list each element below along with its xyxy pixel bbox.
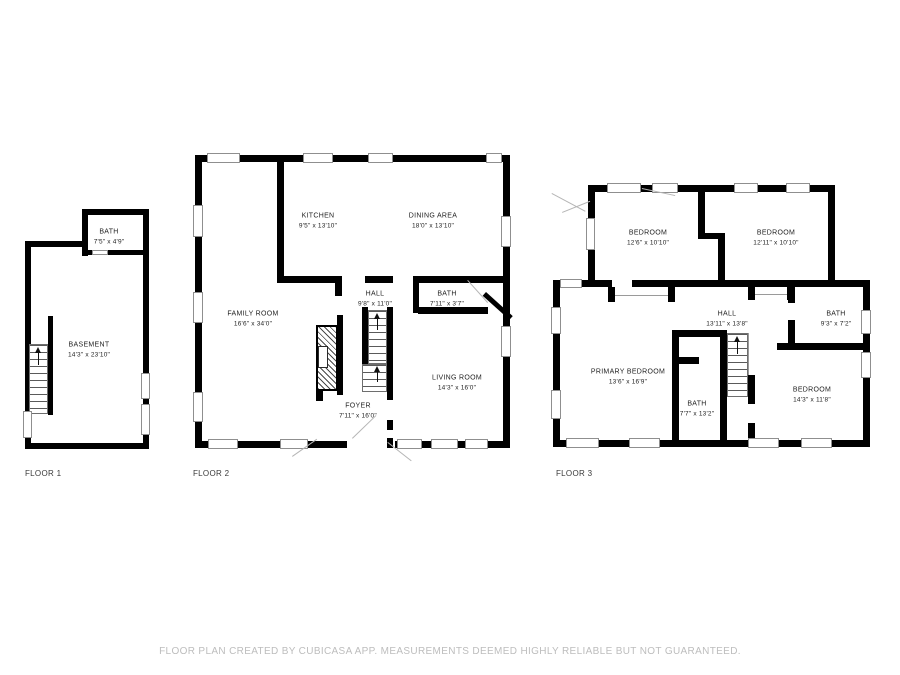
room-label: PRIMARY BEDROOM 13'6" x 16'9" xyxy=(591,368,665,387)
closet-front xyxy=(755,294,787,295)
wall xyxy=(672,330,720,337)
stair-arrow-stem xyxy=(737,342,738,354)
fireplace-hearth xyxy=(318,346,328,368)
window xyxy=(23,411,32,438)
room-name: PRIMARY BEDROOM xyxy=(591,368,665,378)
wall xyxy=(84,250,92,255)
room-name: BATH xyxy=(94,228,125,238)
floor-label: FLOOR 3 xyxy=(556,469,592,478)
wall xyxy=(365,276,393,283)
room-label: FAMILY ROOM 16'6" x 34'0" xyxy=(227,310,278,329)
wall xyxy=(698,185,705,239)
window xyxy=(861,310,871,334)
window xyxy=(486,153,502,163)
room-name: FAMILY ROOM xyxy=(227,310,278,320)
room-name: LIVING ROOM xyxy=(432,374,482,384)
room-name: DINING AREA xyxy=(409,212,457,222)
window xyxy=(141,373,150,399)
window xyxy=(551,390,561,419)
wall xyxy=(82,209,149,215)
wall xyxy=(25,443,149,449)
wall xyxy=(672,330,679,440)
room-dims: 13'6" x 16'9" xyxy=(591,378,665,387)
door-opening xyxy=(92,250,108,255)
room-name: BASEMENT xyxy=(68,341,110,351)
door-jamb xyxy=(668,287,675,302)
wall xyxy=(335,276,342,296)
wall xyxy=(828,185,835,287)
door-jamb xyxy=(608,287,615,302)
window xyxy=(208,439,238,449)
window xyxy=(734,183,758,193)
wall xyxy=(788,287,795,303)
stair-arrow-stem xyxy=(38,353,39,365)
room-label: BATH 7'11" x 3'7" xyxy=(430,290,464,309)
wall xyxy=(277,155,284,282)
room-name: BATH xyxy=(821,310,852,320)
wall xyxy=(25,241,87,247)
room-name: BATH xyxy=(430,290,464,300)
wall xyxy=(748,375,755,404)
room-label: KITCHEN 9'5" x 13'10" xyxy=(299,212,337,231)
room-name: HALL xyxy=(358,290,392,300)
window xyxy=(801,438,832,448)
window xyxy=(193,392,203,422)
wall xyxy=(679,357,699,364)
floor-label: FLOOR 2 xyxy=(193,469,229,478)
window xyxy=(303,153,333,163)
room-dims: 14'3" x 11'8" xyxy=(793,396,831,405)
window xyxy=(861,352,871,378)
floor-plan-canvas: BATH 7'5" x 4'9" BASEMENT 14'3" x 23'10"… xyxy=(0,0,900,675)
window xyxy=(141,404,150,435)
window xyxy=(786,183,810,193)
room-dims: 9'8" x 11'0" xyxy=(358,300,392,309)
room-dims: 9'3" x 7'2" xyxy=(821,320,852,329)
room-name: BEDROOM xyxy=(627,229,669,239)
wall xyxy=(718,233,725,287)
room-name: KITCHEN xyxy=(299,212,337,222)
room-dims: 16'6" x 34'0" xyxy=(227,320,278,329)
room-label: LIVING ROOM 14'3" x 16'0" xyxy=(432,374,482,393)
room-label: BEDROOM 12'11" x 10'10" xyxy=(753,229,798,248)
room-dims: 13'11" x 13'8" xyxy=(706,320,748,329)
wall xyxy=(195,155,510,162)
window xyxy=(193,205,203,237)
room-label: BEDROOM 14'3" x 11'8" xyxy=(793,386,831,405)
room-label: BASEMENT 14'3" x 23'10" xyxy=(68,341,110,360)
window xyxy=(431,439,458,449)
room-dims: 7'7" x 13'2" xyxy=(680,410,714,419)
room-dims: 12'6" x 10'10" xyxy=(627,239,669,248)
room-dims: 7'11" x 16'0" xyxy=(339,412,377,421)
window xyxy=(607,183,641,193)
disclaimer-text: FLOOR PLAN CREATED BY CUBICASA APP. MEAS… xyxy=(0,646,900,657)
wall xyxy=(503,155,510,448)
window xyxy=(207,153,240,163)
window xyxy=(501,216,511,247)
room-label: BATH 7'5" x 4'9" xyxy=(94,228,125,247)
window xyxy=(586,218,595,250)
stair-wall xyxy=(720,330,727,440)
room-dims: 7'11" x 3'7" xyxy=(430,300,464,309)
window xyxy=(560,279,582,288)
room-label: HALL 9'8" x 11'0" xyxy=(358,290,392,309)
door-jamb xyxy=(748,287,755,300)
window xyxy=(566,438,599,448)
stair-edge xyxy=(748,333,749,377)
room-name: FOYER xyxy=(339,402,377,412)
wall xyxy=(413,276,503,283)
room-dims: 9'5" x 13'10" xyxy=(299,222,337,231)
wall xyxy=(553,280,560,447)
wall xyxy=(277,276,337,283)
window xyxy=(397,439,422,449)
door-swing xyxy=(562,201,590,213)
room-dims: 12'11" x 10'10" xyxy=(753,239,798,248)
window xyxy=(551,307,561,334)
window xyxy=(193,292,203,323)
closet-front xyxy=(615,295,668,296)
stair-arrow-stem xyxy=(377,372,378,382)
wall xyxy=(632,280,829,287)
room-label: BATH 7'7" x 13'2" xyxy=(680,400,714,419)
stair-wall xyxy=(387,307,393,400)
room-name: BATH xyxy=(680,400,714,410)
window xyxy=(501,326,511,357)
room-label: DINING AREA 18'0" x 13'10" xyxy=(409,212,457,231)
window xyxy=(748,438,779,448)
stair-arrow-stem xyxy=(377,319,378,330)
room-dims: 7'5" x 4'9" xyxy=(94,238,125,247)
stair-wall xyxy=(48,316,53,415)
room-label: BEDROOM 12'6" x 10'10" xyxy=(627,229,669,248)
wall xyxy=(82,209,88,256)
wall xyxy=(788,320,795,350)
wall xyxy=(387,420,393,430)
window xyxy=(629,438,660,448)
window xyxy=(465,439,488,449)
floor-label: FLOOR 1 xyxy=(25,469,61,478)
room-name: BEDROOM xyxy=(753,229,798,239)
room-dims: 14'3" x 23'10" xyxy=(68,351,110,360)
room-dims: 14'3" x 16'0" xyxy=(432,384,482,393)
window xyxy=(368,153,393,163)
room-label: HALL 13'11" x 13'8" xyxy=(706,310,748,329)
wall xyxy=(108,250,145,255)
room-label: BATH 9'3" x 7'2" xyxy=(821,310,852,329)
room-name: HALL xyxy=(706,310,748,320)
room-label: FOYER 7'11" x 16'0" xyxy=(339,402,377,421)
room-dims: 18'0" x 13'10" xyxy=(409,222,457,231)
room-name: BEDROOM xyxy=(793,386,831,396)
